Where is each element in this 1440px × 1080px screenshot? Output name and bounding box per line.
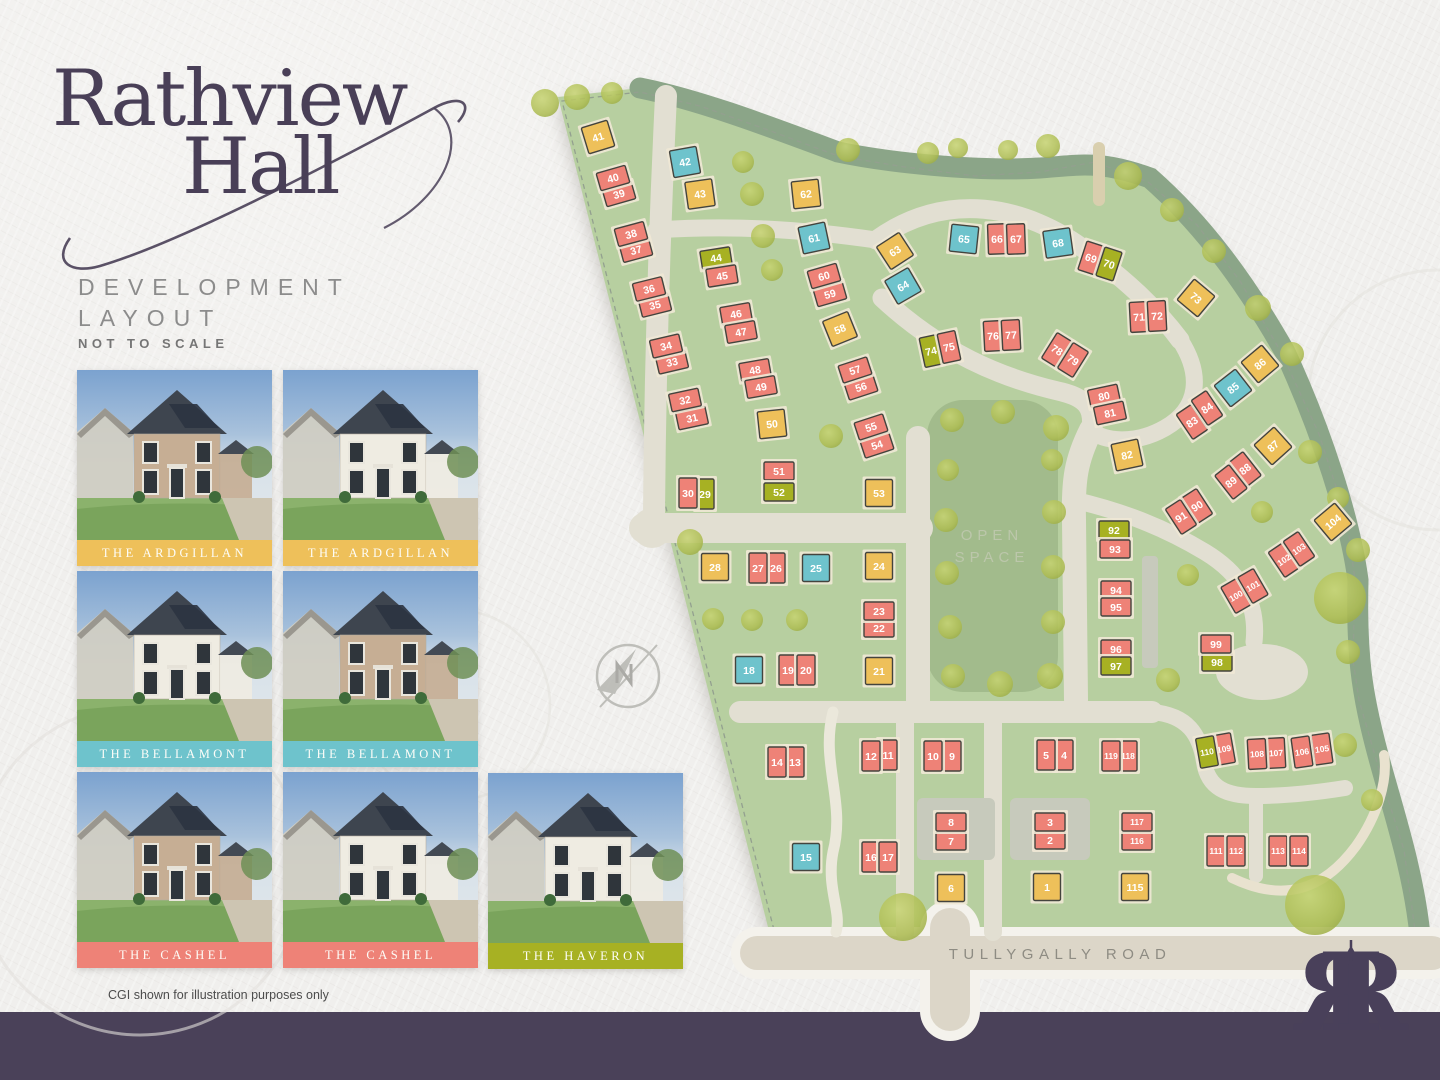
tree-icon xyxy=(938,615,962,639)
svg-text:68: 68 xyxy=(1051,237,1064,251)
tree-icon xyxy=(1333,733,1357,757)
svg-text:22: 22 xyxy=(873,623,885,635)
plot-marker-12: 12 xyxy=(859,738,883,774)
tree-icon xyxy=(1037,663,1063,689)
tree-icon xyxy=(819,424,843,448)
open-space: OPEN SPACE xyxy=(927,400,1058,692)
plot-marker-6: 6 xyxy=(935,872,968,905)
house-photo-card: THE BELLAMONT xyxy=(77,571,272,767)
tree-icon xyxy=(1245,295,1271,321)
plot-marker-27: 27 xyxy=(746,550,770,586)
tree-icon xyxy=(751,224,775,248)
plot-marker-30: 30 xyxy=(676,475,700,511)
svg-text:10: 10 xyxy=(927,751,939,763)
tree-icon xyxy=(740,182,764,206)
tree-icon xyxy=(1160,198,1184,222)
tree-icon xyxy=(991,400,1015,424)
svg-text:62: 62 xyxy=(800,188,813,201)
tree-icon xyxy=(940,408,964,432)
monogram-letter-mirrored: R xyxy=(1293,930,1384,1056)
tree-icon xyxy=(941,664,965,688)
svg-text:16: 16 xyxy=(865,852,877,864)
tree-icon xyxy=(786,609,808,631)
plot-marker-14: 14 xyxy=(765,744,789,780)
svg-text:99: 99 xyxy=(1210,639,1222,651)
plot-marker-112: 112 xyxy=(1224,833,1248,869)
plot-marker-1: 1 xyxy=(1031,871,1064,904)
house-photo-card: THE HAVERON xyxy=(488,773,683,969)
tree-icon xyxy=(1280,342,1304,366)
svg-text:9: 9 xyxy=(949,751,955,763)
svg-text:12: 12 xyxy=(865,751,877,763)
svg-text:11: 11 xyxy=(882,750,893,762)
svg-text:67: 67 xyxy=(1010,234,1022,246)
tree-icon xyxy=(1043,415,1069,441)
tree-icon xyxy=(1156,668,1180,692)
plot-marker-50: 50 xyxy=(754,406,790,442)
tree-icon xyxy=(1285,875,1345,935)
svg-text:72: 72 xyxy=(1151,310,1163,323)
svg-text:2: 2 xyxy=(1047,835,1053,847)
tree-icon xyxy=(836,138,860,162)
tree-icon xyxy=(1177,564,1199,586)
svg-text:106: 106 xyxy=(1294,746,1310,758)
tree-icon xyxy=(987,671,1013,697)
tree-icon xyxy=(1036,134,1060,158)
tree-icon xyxy=(564,84,590,110)
svg-text:71: 71 xyxy=(1133,311,1145,324)
title-line2: Hall xyxy=(182,136,492,198)
plot-marker-10: 10 xyxy=(921,738,945,774)
tree-icon xyxy=(1314,572,1366,624)
svg-text:43: 43 xyxy=(693,188,706,202)
svg-text:97: 97 xyxy=(1110,661,1122,673)
svg-text:8: 8 xyxy=(948,817,954,829)
svg-text:15: 15 xyxy=(800,852,812,864)
plot-marker-21: 21 xyxy=(863,655,896,688)
plot-marker-23: 23 xyxy=(861,599,897,623)
plot-marker-67: 67 xyxy=(1003,221,1028,258)
svg-text:1: 1 xyxy=(1044,882,1050,894)
svg-text:66: 66 xyxy=(991,234,1003,246)
house-photo-card: THE CASHEL xyxy=(77,772,272,968)
svg-text:13: 13 xyxy=(789,757,801,769)
plot-marker-52: 52 xyxy=(761,480,797,504)
plot-marker-18: 18 xyxy=(733,654,766,687)
brochure-page: Rathview Hall DEVELOPMENT LAYOUT NOT TO … xyxy=(0,0,1440,1080)
tree-icon xyxy=(1042,500,1066,524)
svg-text:49: 49 xyxy=(754,381,768,395)
svg-text:27: 27 xyxy=(752,563,764,575)
subtitle-line1: DEVELOPMENT xyxy=(78,272,351,303)
tree-icon xyxy=(948,138,968,158)
tree-icon xyxy=(1298,440,1322,464)
plot-marker-3: 3 xyxy=(1032,810,1068,834)
house-photo-card: THE ARDGILLAN xyxy=(283,370,478,566)
tree-icon xyxy=(879,893,927,941)
svg-text:24: 24 xyxy=(873,561,885,573)
svg-text:20: 20 xyxy=(800,665,812,677)
open-space-label-line2: SPACE xyxy=(955,549,1030,566)
plot-marker-72: 72 xyxy=(1144,297,1170,334)
plot-marker-28: 28 xyxy=(699,551,732,584)
svg-text:18: 18 xyxy=(743,665,755,677)
svg-text:45: 45 xyxy=(715,270,729,284)
plot-marker-20: 20 xyxy=(794,652,818,688)
svg-text:46: 46 xyxy=(729,308,743,322)
plot-marker-53: 53 xyxy=(863,477,896,510)
svg-text:3: 3 xyxy=(1047,817,1053,829)
plot-marker-106: 106 xyxy=(1288,733,1317,772)
svg-text:92: 92 xyxy=(1108,525,1120,537)
plot-marker-15: 15 xyxy=(790,841,823,874)
svg-text:116: 116 xyxy=(1130,836,1144,846)
plot-marker-43: 43 xyxy=(681,175,718,212)
subtitle-line2: LAYOUT xyxy=(78,303,351,334)
tree-icon xyxy=(741,609,763,631)
house-type-label: THE ARDGILLAN xyxy=(77,540,272,566)
house-type-label: THE ARDGILLAN xyxy=(283,540,478,566)
svg-text:117: 117 xyxy=(1130,817,1144,827)
tree-icon xyxy=(1041,610,1065,634)
svg-text:108: 108 xyxy=(1250,749,1265,760)
tree-icon xyxy=(601,82,623,104)
plot-marker-114: 114 xyxy=(1287,833,1311,869)
svg-text:113: 113 xyxy=(1271,846,1285,856)
plot-marker-115: 115 xyxy=(1119,871,1152,904)
subtitle: DEVELOPMENT LAYOUT xyxy=(78,272,351,334)
open-space-label-line1: OPEN xyxy=(961,527,1024,544)
page-title: Rathview Hall xyxy=(52,68,492,199)
svg-text:23: 23 xyxy=(873,606,885,618)
svg-text:112: 112 xyxy=(1229,846,1243,856)
svg-text:115: 115 xyxy=(1127,882,1144,894)
house-photo xyxy=(77,370,272,540)
house-photo-card: THE BELLAMONT xyxy=(283,571,478,767)
cgi-disclaimer: CGI shown for illustration purposes only xyxy=(108,988,329,1002)
plot-marker-68: 68 xyxy=(1039,224,1076,261)
tree-icon xyxy=(1041,555,1065,579)
tree-icon xyxy=(702,608,724,630)
plot-marker-119: 119 xyxy=(1099,738,1123,774)
tree-icon xyxy=(1336,640,1360,664)
svg-text:98: 98 xyxy=(1211,657,1223,669)
plot-marker-62: 62 xyxy=(788,176,824,212)
svg-text:26: 26 xyxy=(770,563,782,575)
house-photo xyxy=(283,370,478,540)
rathview-monogram: R R xyxy=(1293,930,1409,1056)
plot-marker-113: 113 xyxy=(1266,833,1290,869)
svg-text:105: 105 xyxy=(1314,743,1330,755)
compass-icon xyxy=(597,645,659,707)
svg-text:114: 114 xyxy=(1292,846,1306,856)
svg-text:42: 42 xyxy=(678,156,692,170)
tree-icon xyxy=(934,508,958,532)
road-label: TULLYGALLY ROAD xyxy=(949,946,1172,963)
plot-marker-25: 25 xyxy=(800,552,833,585)
svg-text:17: 17 xyxy=(882,852,894,864)
plot-marker-82: 82 xyxy=(1107,435,1146,474)
plot-marker-24: 24 xyxy=(863,550,896,583)
svg-text:118: 118 xyxy=(1121,751,1135,761)
plot-marker-95: 95 xyxy=(1098,595,1134,619)
plot-marker-42: 42 xyxy=(666,143,704,181)
plot-marker-93: 93 xyxy=(1097,537,1133,561)
house-photo xyxy=(283,772,478,942)
tree-icon xyxy=(937,459,959,481)
svg-text:14: 14 xyxy=(771,757,783,769)
svg-text:25: 25 xyxy=(810,563,822,575)
plot-marker-17: 17 xyxy=(876,839,900,875)
svg-text:51: 51 xyxy=(773,466,785,478)
svg-text:95: 95 xyxy=(1110,602,1122,614)
svg-text:76: 76 xyxy=(987,330,999,343)
tree-icon xyxy=(1346,538,1370,562)
tree-icon xyxy=(935,561,959,585)
plot-marker-51: 51 xyxy=(761,459,797,483)
tree-icon xyxy=(1361,789,1383,811)
svg-text:50: 50 xyxy=(766,418,779,431)
svg-text:5: 5 xyxy=(1043,750,1049,762)
plot-marker-61: 61 xyxy=(794,218,833,257)
house-type-label: THE BELLAMONT xyxy=(283,741,478,767)
scale-note: NOT TO SCALE xyxy=(78,336,229,351)
svg-text:4: 4 xyxy=(1061,750,1067,762)
tree-icon xyxy=(917,142,939,164)
svg-text:53: 53 xyxy=(873,488,885,500)
house-photo xyxy=(77,772,272,942)
tree-icon xyxy=(1202,239,1226,263)
svg-text:107: 107 xyxy=(1269,748,1284,759)
svg-text:52: 52 xyxy=(773,487,785,499)
plot-marker-117: 117 xyxy=(1119,810,1155,834)
house-type-label: THE CASHEL xyxy=(77,942,272,968)
house-type-label: THE CASHEL xyxy=(283,942,478,968)
tree-icon xyxy=(761,259,783,281)
tree-icon xyxy=(998,140,1018,160)
svg-text:30: 30 xyxy=(682,488,694,500)
house-photo xyxy=(283,571,478,741)
svg-text:65: 65 xyxy=(957,233,970,246)
tree-icon xyxy=(732,151,754,173)
tree-icon xyxy=(1041,449,1063,471)
brand-logo: Rathview Hall xyxy=(52,68,492,199)
title-line1: Rathview xyxy=(52,68,492,130)
svg-text:19: 19 xyxy=(782,665,794,677)
svg-text:44: 44 xyxy=(709,252,723,266)
plot-marker-97: 97 xyxy=(1098,654,1134,678)
svg-text:7: 7 xyxy=(948,836,954,848)
svg-text:28: 28 xyxy=(709,562,721,574)
svg-text:119: 119 xyxy=(1104,751,1118,761)
tree-icon xyxy=(1251,501,1273,523)
plot-marker-99: 99 xyxy=(1198,632,1234,656)
house-photo xyxy=(488,773,683,943)
plot-marker-77: 77 xyxy=(998,316,1024,353)
house-photo-card: THE CASHEL xyxy=(283,772,478,968)
svg-text:47: 47 xyxy=(734,326,748,340)
plot-marker-65: 65 xyxy=(946,221,982,257)
svg-text:29: 29 xyxy=(699,489,711,501)
plot-marker-5: 5 xyxy=(1034,737,1058,773)
house-photo xyxy=(77,571,272,741)
svg-text:111: 111 xyxy=(1209,846,1223,856)
svg-text:21: 21 xyxy=(873,666,885,678)
svg-text:6: 6 xyxy=(948,883,954,895)
house-type-label: THE HAVERON xyxy=(488,943,683,969)
plot-marker-8: 8 xyxy=(933,810,969,834)
house-type-label: THE BELLAMONT xyxy=(77,741,272,767)
plot-marker-108: 108 xyxy=(1244,735,1270,772)
house-photo-card: THE ARDGILLAN xyxy=(77,370,272,566)
tree-icon xyxy=(531,89,559,117)
svg-text:77: 77 xyxy=(1005,329,1017,342)
tree-icon xyxy=(1114,162,1142,190)
svg-text:93: 93 xyxy=(1109,544,1121,556)
